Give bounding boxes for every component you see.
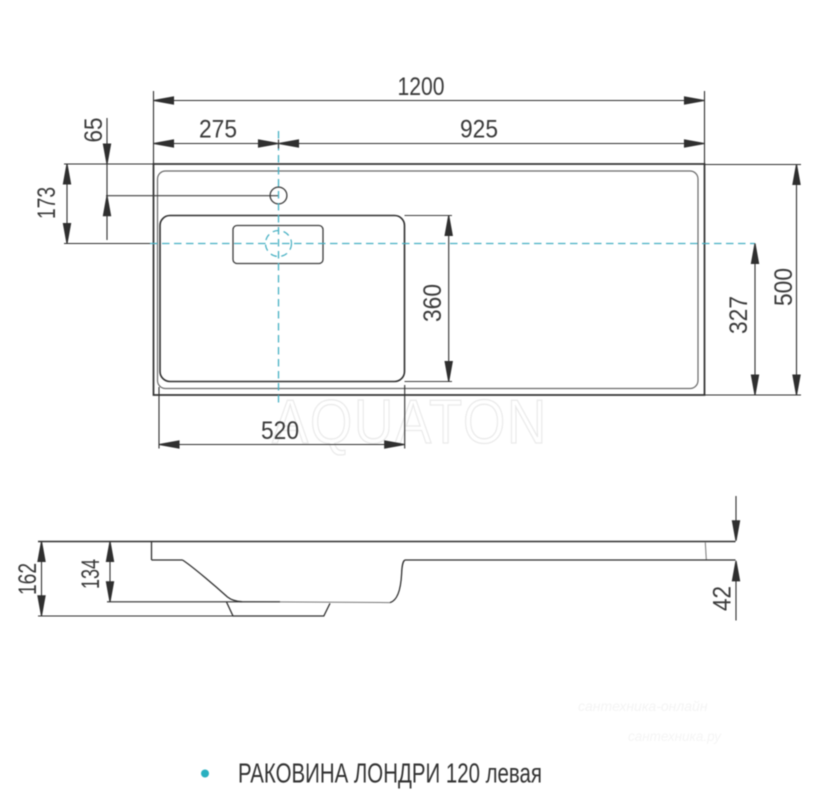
- svg-text:360: 360: [419, 284, 447, 322]
- svg-text:сантехника-онлайн: сантехника-онлайн: [578, 698, 708, 714]
- svg-text:42: 42: [709, 586, 737, 611]
- svg-text:AQUATON: AQUATON: [272, 388, 548, 457]
- svg-text:РАКОВИНА ЛОНДРИ 120 левая: РАКОВИНА ЛОНДРИ 120 левая: [238, 758, 542, 789]
- svg-text:327: 327: [725, 296, 753, 334]
- svg-text:173: 173: [33, 187, 61, 219]
- svg-text:65: 65: [80, 118, 108, 143]
- svg-text:сантехника.ру: сантехника.ру: [628, 729, 722, 744]
- svg-text:500: 500: [770, 268, 798, 306]
- svg-text:1200: 1200: [398, 73, 445, 101]
- svg-text:275: 275: [199, 116, 237, 144]
- svg-text:162: 162: [14, 563, 42, 595]
- svg-text:925: 925: [460, 116, 498, 144]
- svg-text:520: 520: [261, 417, 299, 445]
- svg-text:134: 134: [77, 559, 105, 589]
